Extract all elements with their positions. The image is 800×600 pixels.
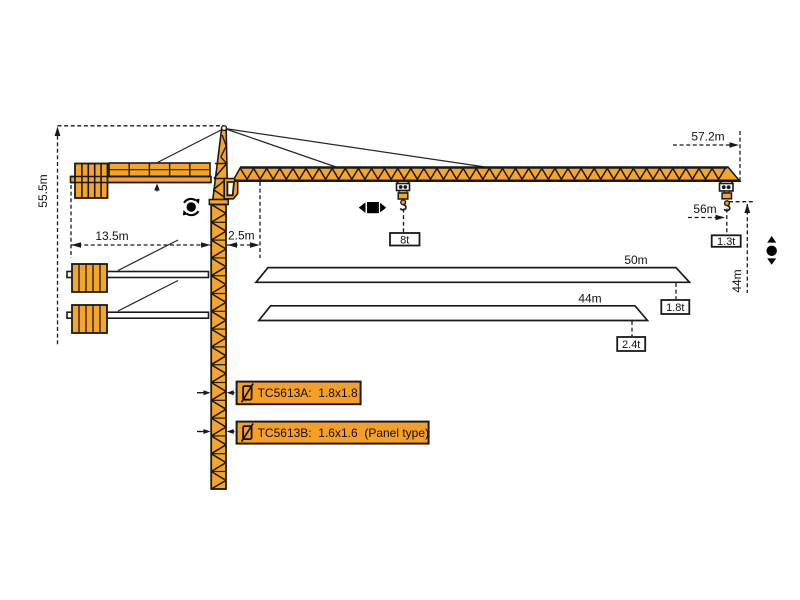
svg-text:44m: 44m (730, 269, 744, 292)
svg-text:13.5m: 13.5m (95, 229, 128, 243)
svg-text:44m: 44m (578, 292, 601, 306)
svg-text:TC5613A: 1.8x1.8: TC5613A: 1.8x1.8 (258, 386, 358, 400)
svg-text:1.8t: 1.8t (666, 302, 684, 314)
svg-text:50m: 50m (624, 253, 647, 267)
svg-text:2.5m: 2.5m (228, 229, 255, 243)
svg-text:55.5m: 55.5m (36, 174, 50, 207)
svg-text:TC5613B: 1.6x1.6 (Panel type: TC5613B: 1.6x1.6 (Panel type) (258, 426, 429, 440)
svg-text:2.4t: 2.4t (622, 339, 640, 351)
svg-text:8t: 8t (400, 234, 409, 246)
svg-text:56m: 56m (693, 202, 716, 216)
svg-text:1.3t: 1.3t (717, 236, 735, 248)
svg-text:57.2m: 57.2m (691, 130, 724, 144)
